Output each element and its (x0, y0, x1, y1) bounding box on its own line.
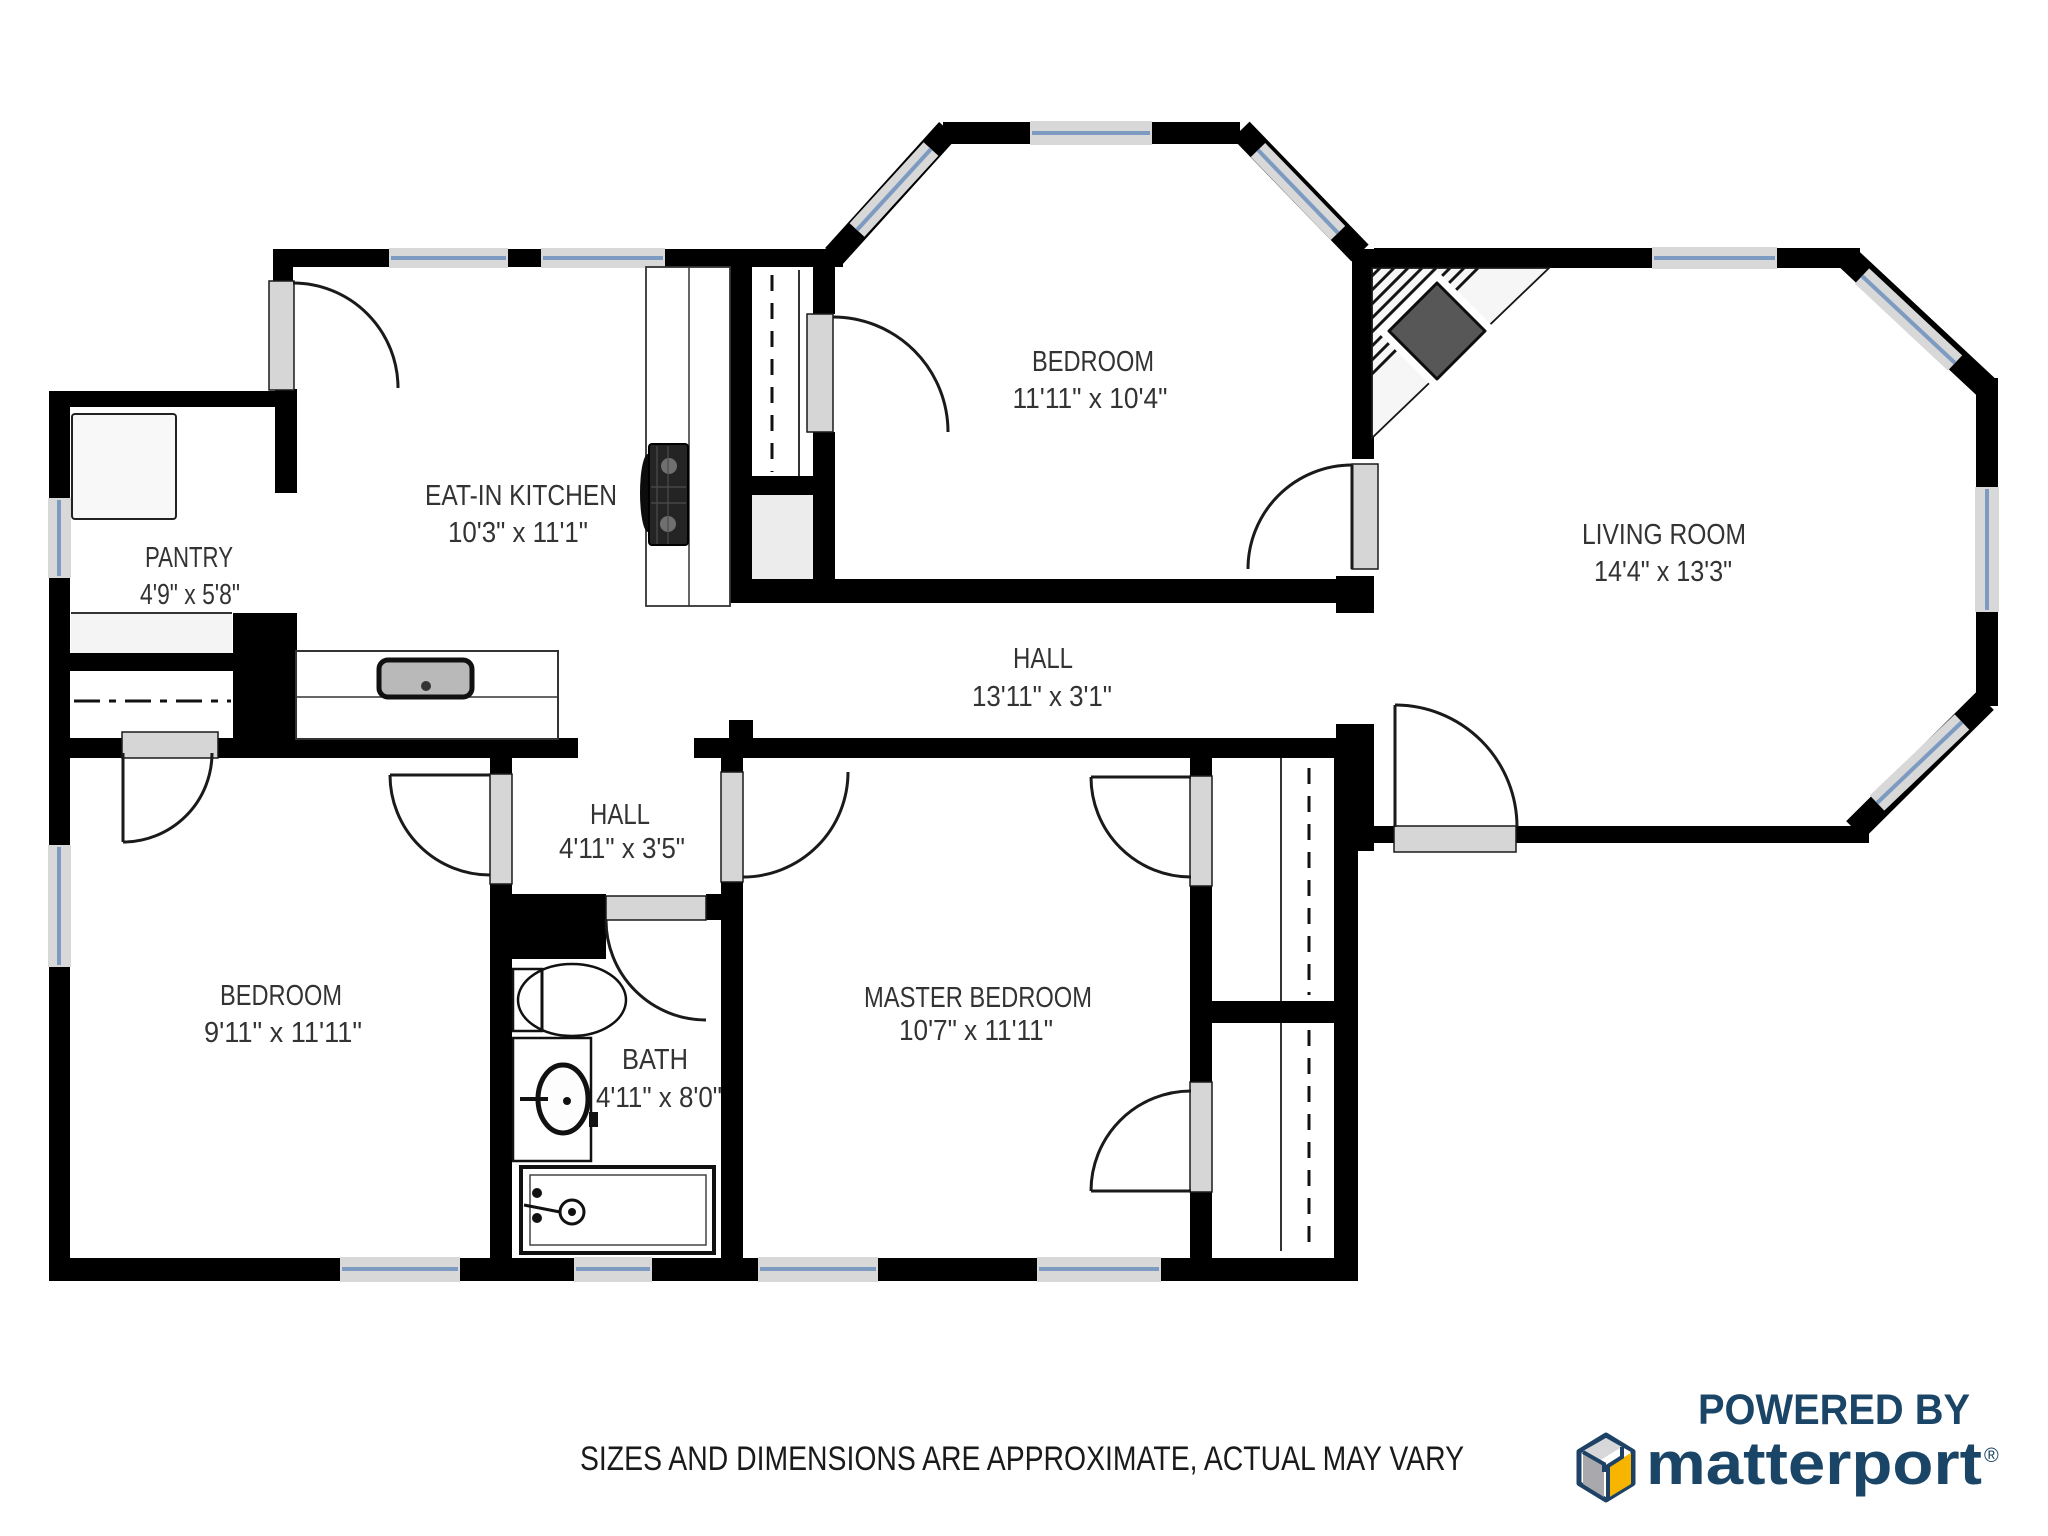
svg-text:®: ® (1984, 1445, 1999, 1467)
svg-text:10'7" x 11'11": 10'7" x 11'11" (899, 1015, 1053, 1047)
svg-text:LIVING ROOM: LIVING ROOM (1582, 519, 1746, 551)
svg-text:PANTRY: PANTRY (145, 542, 233, 574)
svg-text:11'11" x 10'4": 11'11" x 10'4" (1013, 383, 1168, 415)
svg-text:4'11" x 8'0": 4'11" x 8'0" (596, 1082, 722, 1114)
svg-text:BEDROOM: BEDROOM (1032, 346, 1154, 378)
svg-text:POWERED BY: POWERED BY (1698, 1386, 1970, 1434)
svg-text:BATH: BATH (622, 1044, 688, 1076)
svg-text:SIZES AND DIMENSIONS ARE APPRO: SIZES AND DIMENSIONS ARE APPROXIMATE, AC… (580, 1440, 1464, 1478)
svg-text:4'9" x 5'8": 4'9" x 5'8" (140, 579, 240, 611)
svg-text:4'11" x 3'5": 4'11" x 3'5" (559, 833, 685, 865)
svg-text:10'3" x 11'1": 10'3" x 11'1" (448, 517, 588, 549)
svg-text:EAT-IN KITCHEN: EAT-IN KITCHEN (425, 480, 617, 512)
svg-text:14'4" x 13'3": 14'4" x 13'3" (1594, 556, 1732, 588)
svg-text:matterport: matterport (1646, 1430, 1982, 1497)
svg-text:MASTER BEDROOM: MASTER BEDROOM (864, 982, 1092, 1014)
svg-text:BEDROOM: BEDROOM (220, 980, 342, 1012)
svg-text:9'11" x 11'11": 9'11" x 11'11" (204, 1017, 362, 1049)
svg-text:HALL: HALL (1013, 643, 1073, 675)
svg-text:13'11" x 3'1": 13'11" x 3'1" (972, 681, 1112, 713)
svg-text:HALL: HALL (590, 799, 650, 831)
